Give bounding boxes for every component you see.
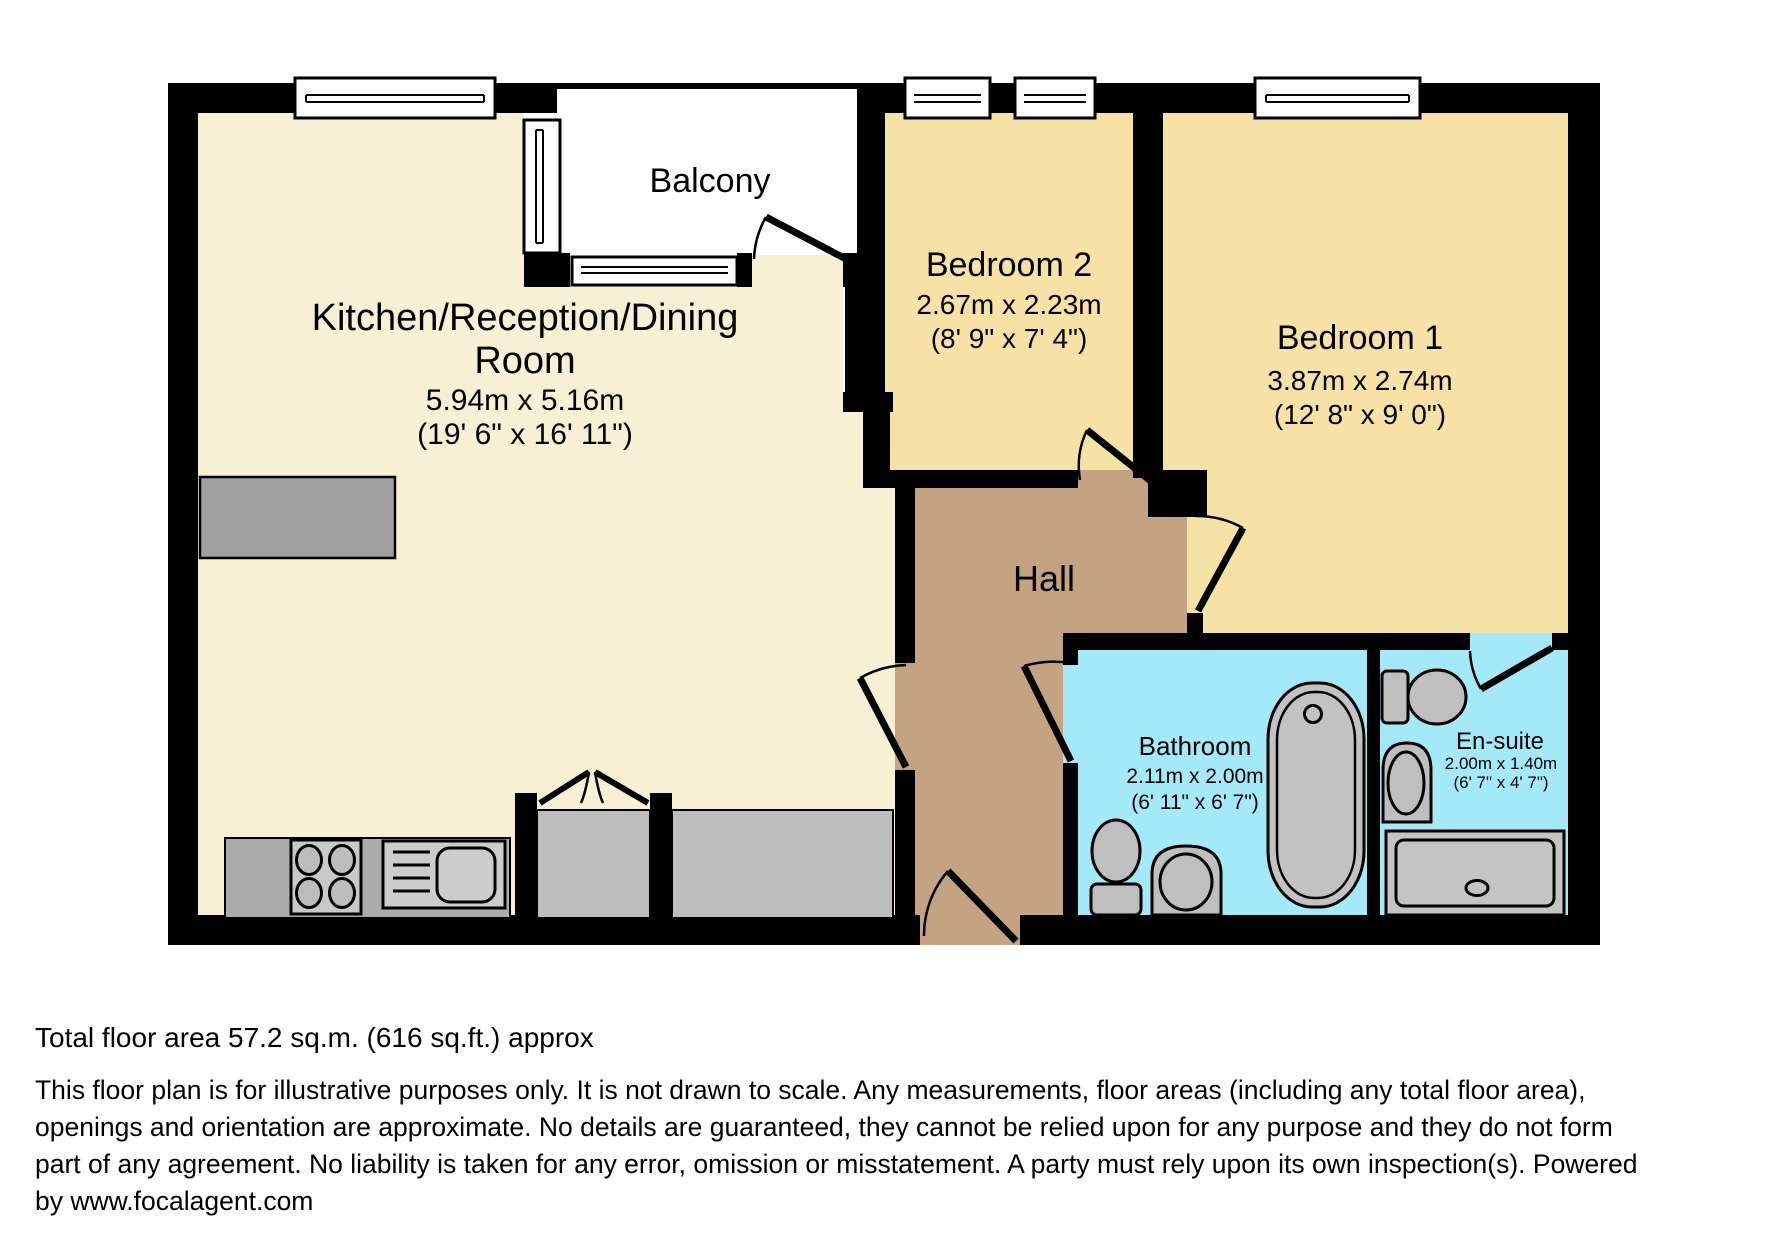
toilet xyxy=(1091,820,1141,915)
bedroom1-dims-metric: 3.87m x 2.74m xyxy=(1267,365,1452,396)
bedroom2-window-right xyxy=(1015,78,1095,118)
total-floor-area: Total floor area 57.2 sq.m. (616 sq.ft.)… xyxy=(35,1022,594,1054)
ensuite-basin xyxy=(1383,743,1431,822)
bedroom1-door-threshold xyxy=(1187,517,1203,613)
bedroom2-dims-imperial: (8' 9" x 7' 4") xyxy=(931,323,1088,354)
wash-basin xyxy=(1152,846,1221,915)
kitchen-dims-metric: 5.94m x 5.16m xyxy=(426,384,624,417)
kitchen-dims-imperial: (19' 6" x 16' 11") xyxy=(417,418,633,451)
hob-icon xyxy=(291,840,361,914)
ensuite-name: En-suite xyxy=(1456,728,1544,755)
shower-tray xyxy=(1386,831,1564,915)
bedroom2-name: Bedroom 2 xyxy=(926,246,1092,284)
bath xyxy=(1268,683,1364,907)
bedroom2-dims-metric: 2.67m x 2.23m xyxy=(916,289,1101,320)
bathroom-dims-imperial: (6' 11" x 6' 7") xyxy=(1131,791,1259,814)
kitchen-window xyxy=(295,78,495,118)
balcony-door-threshold xyxy=(752,255,843,287)
ensuite-door-threshold xyxy=(1470,633,1552,650)
bathroom-name: Bathroom xyxy=(1139,731,1252,761)
balcony-label: Balcony xyxy=(650,162,771,200)
sink-icon xyxy=(383,841,505,908)
disclaimer-line-4: by www.focalagent.com xyxy=(35,1183,1638,1220)
hall-label: Hall xyxy=(1013,558,1075,599)
disclaimer-line-1: This floor plan is for illustrative purp… xyxy=(35,1072,1638,1109)
bedroom1-name: Bedroom 1 xyxy=(1277,319,1443,357)
disclaimer-line-2: openings and orientation are approximate… xyxy=(35,1109,1638,1146)
bathroom-dims-metric: 2.11m x 2.00m xyxy=(1126,765,1263,788)
kitchen-unit xyxy=(200,477,395,558)
balcony-bottom-window xyxy=(572,257,737,285)
bedroom1-dims-imperial: (12' 8" x 9' 0") xyxy=(1274,399,1446,430)
ensuite-dims-metric: 2.00m x 1.40m xyxy=(1445,754,1557,773)
kitchen-name-line2: Room xyxy=(474,340,575,382)
bedroom2-window-left xyxy=(905,78,990,118)
kitchen-name-line1: Kitchen/Reception/Dining xyxy=(312,297,739,339)
bedroom1-window xyxy=(1255,78,1420,118)
storage-cupboard-1 xyxy=(537,810,650,918)
balcony-side-window xyxy=(524,120,560,253)
disclaimer: This floor plan is for illustrative purp… xyxy=(35,1072,1638,1220)
ensuite-dims-imperial: (6' 7" x 4' 7") xyxy=(1453,773,1548,792)
ensuite-toilet xyxy=(1382,670,1466,724)
disclaimer-line-3: part of any agreement. No liability is t… xyxy=(35,1146,1638,1183)
storage-cupboard-2 xyxy=(672,810,893,918)
